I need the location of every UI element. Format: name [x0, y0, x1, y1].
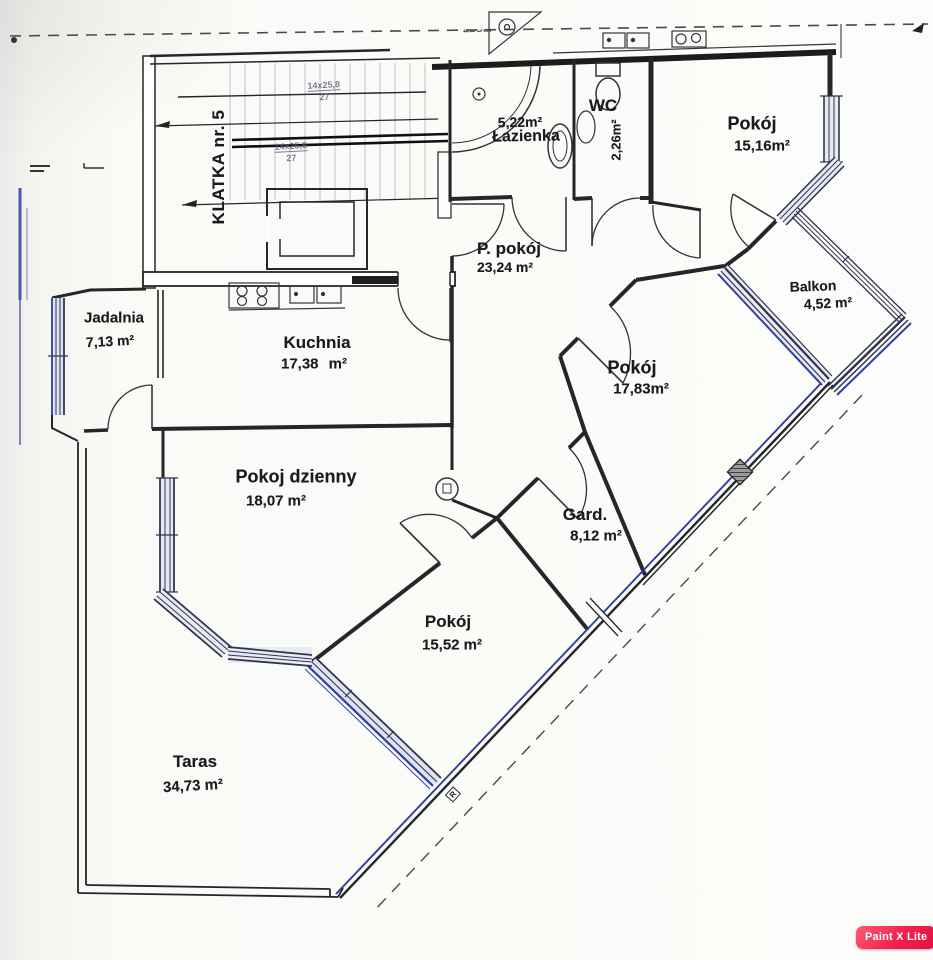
room-label-klatka: KLATKA nr. 5	[209, 110, 229, 225]
room-area-gard: 8,12 m²	[570, 528, 622, 545]
door-pokoj3	[400, 514, 472, 563]
door-pokoj1	[653, 205, 700, 258]
floorplan-canvas: KLATKA nr. 5 5,22m² Łazienka WC 2,26m² P…	[0, 0, 933, 960]
room-area-pokoj-dzienny: 18,07 m²	[246, 493, 306, 510]
stair-flight-mark-1: 14x25,8 27	[307, 79, 341, 103]
doors	[108, 194, 776, 563]
shaft-hatch-marker	[727, 459, 752, 484]
room-label-balkon: Balkon	[789, 277, 836, 295]
room-area-pokoj-2: 17,83m²	[613, 381, 669, 398]
room-area-taras: 34,73 m²	[163, 776, 224, 796]
neighbor-stove-icon	[672, 31, 706, 47]
room-area-jadalnia: 7,13 m²	[85, 332, 134, 351]
room-label-lazienka: Łazienka	[492, 127, 560, 146]
room-label-pokoj-3: Pokój	[425, 612, 471, 632]
entry-threshold	[352, 276, 398, 284]
stair-steps-2: 14x25,8	[274, 140, 307, 152]
room-area-pokoj-1: 15,16m²	[734, 138, 790, 155]
room-area-balkon: 4,52 m²	[803, 294, 852, 313]
window-chamfer	[777, 157, 844, 225]
shower-head-icon	[499, 19, 515, 35]
room-label-pokoj-2: Pokój	[607, 358, 656, 379]
balcony-railing-se	[828, 314, 911, 395]
room-area-pokoj-3: 15,52 m²	[422, 637, 482, 654]
stair-flight-mark-2: 14x25,8 27	[274, 140, 308, 164]
stair-arrow-icon	[155, 119, 452, 207]
room-label-gard: Gard.	[563, 505, 607, 525]
room-label-jadalnia: Jadalnia	[84, 310, 144, 327]
room-area-p-pokoj: 23,24 m²	[477, 259, 533, 275]
column-icon	[436, 478, 458, 500]
room-area-kuchnia: 17,38 m²	[281, 356, 347, 373]
room-label-wc: WC	[589, 96, 617, 116]
paint-x-lite-badge: Paint X Lite	[856, 926, 933, 949]
stair-rise-1: 27	[308, 89, 341, 103]
room-area-wc: 2,26m²	[609, 119, 624, 160]
window-bay-horizontal	[228, 647, 312, 666]
door-jadalnia	[108, 385, 152, 429]
room-label-kuchnia: Kuchnia	[283, 333, 350, 353]
room-label-pokoj-dzienny: Pokoj dzienny	[235, 467, 356, 488]
stair-steps-1: 14x25,8	[307, 79, 340, 91]
door-wc	[592, 198, 640, 246]
window-right-wall	[820, 96, 843, 162]
terrace-railing	[78, 442, 343, 897]
door-entry	[398, 288, 450, 342]
floorplan-drawing	[0, 0, 933, 960]
window-bay-diagonal	[154, 589, 231, 657]
neighbor-sink-icon	[603, 33, 649, 48]
room-label-taras: Taras	[173, 752, 217, 772]
window-pokoj3-terrace	[305, 658, 441, 789]
window-jadalnia	[48, 298, 68, 415]
room-label-pokoj-1: Pokój	[727, 114, 776, 135]
window-bay-vertical	[156, 478, 178, 592]
stair-rise-2: 27	[275, 150, 308, 164]
neighbor-fixtures	[489, 12, 836, 54]
door-balcony	[731, 194, 776, 247]
room-label-p-pokoj: P. pokój	[477, 239, 541, 259]
